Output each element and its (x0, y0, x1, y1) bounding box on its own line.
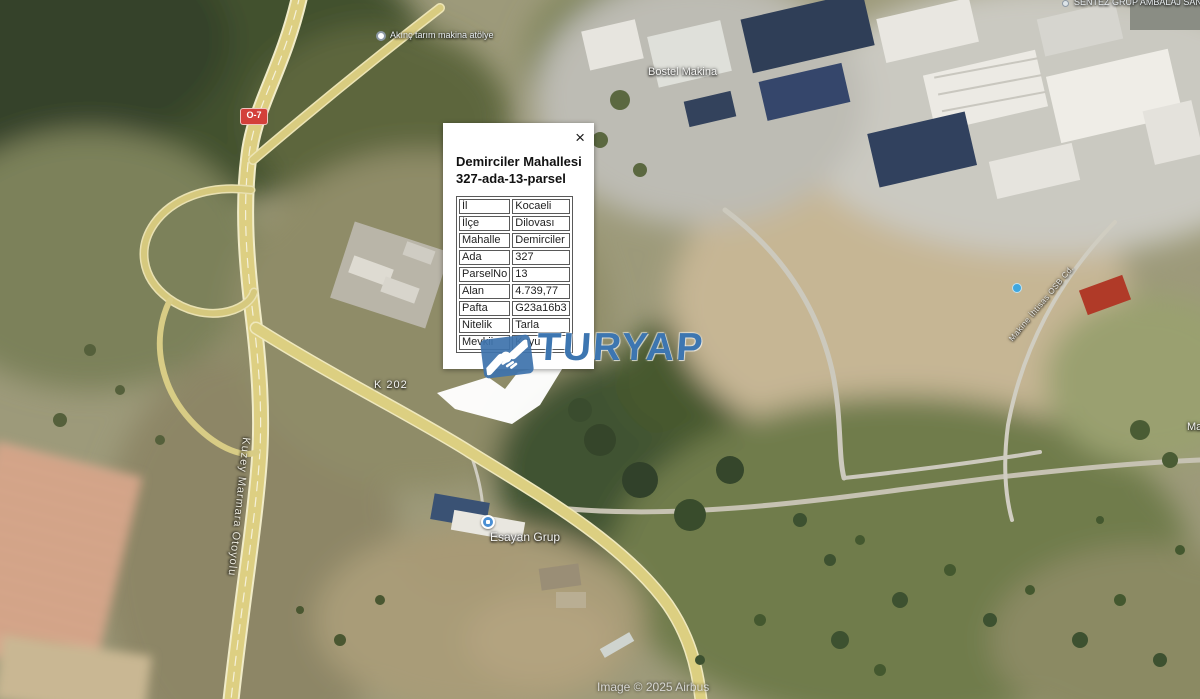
poi-label-esayan[interactable]: Esayan Grup (490, 530, 560, 544)
motorway-shield-o7: O-7 (240, 108, 268, 125)
row-value: G23a16b3 (512, 301, 569, 316)
poi-marker-atolye[interactable] (376, 31, 386, 41)
imagery-attribution: Image © 2025 Airbus (597, 680, 709, 694)
poi-label-atolye[interactable]: Akınç tarım makina atölye (390, 30, 494, 40)
table-row: İlçe Dilovası (459, 216, 570, 231)
table-row: Alan 4.739,77 (459, 284, 570, 299)
close-icon[interactable]: × (575, 129, 585, 146)
row-value: Demirciler (512, 233, 569, 248)
watermark-brand: TURYAP (535, 326, 705, 370)
row-label: Ada (459, 250, 510, 265)
popup-title: Demirciler Mahallesi 327-ada-13-parsel (456, 153, 588, 187)
row-label: Pafta (459, 301, 510, 316)
popup-title-line1: Demirciler Mahallesi (456, 153, 588, 170)
table-row: ParselNo 13 (459, 267, 570, 282)
table-row: Mahalle Demirciler (459, 233, 570, 248)
row-label: İlçe (459, 216, 510, 231)
poi-marker-esayan[interactable] (481, 515, 495, 529)
row-value: Dilovası (512, 216, 569, 231)
road-label-edge-clipped: Mak (1187, 421, 1200, 433)
row-value: Kocaeli (512, 199, 569, 214)
table-row: Pafta G23a16b3 (459, 301, 570, 316)
row-value: 327 (512, 250, 569, 265)
handshake-icon (480, 334, 534, 379)
poi-label-bostel[interactable]: Bostel Makina (648, 66, 717, 78)
popup-title-line2: 327-ada-13-parsel (456, 170, 588, 187)
row-label: İl (459, 199, 510, 214)
row-label: ParselNo (459, 267, 510, 282)
road-label-k202: K 202 (374, 379, 408, 391)
map-canvas[interactable]: Akınç tarım makina atölye Bostel Makina … (0, 0, 1200, 699)
table-row: Ada 327 (459, 250, 570, 265)
row-label: Nitelik (459, 318, 510, 333)
poi-marker-sentez[interactable] (1062, 0, 1069, 7)
poi-marker-blue-dot[interactable] (1012, 283, 1022, 293)
row-value: 4.739,77 (512, 284, 569, 299)
row-value: 13 (512, 267, 569, 282)
row-label: Mahalle (459, 233, 510, 248)
row-label: Alan (459, 284, 510, 299)
poi-label-sentez[interactable]: SENTEZ GRUP AMBALAJ SAN (1074, 0, 1200, 7)
table-row: İl Kocaeli (459, 199, 570, 214)
